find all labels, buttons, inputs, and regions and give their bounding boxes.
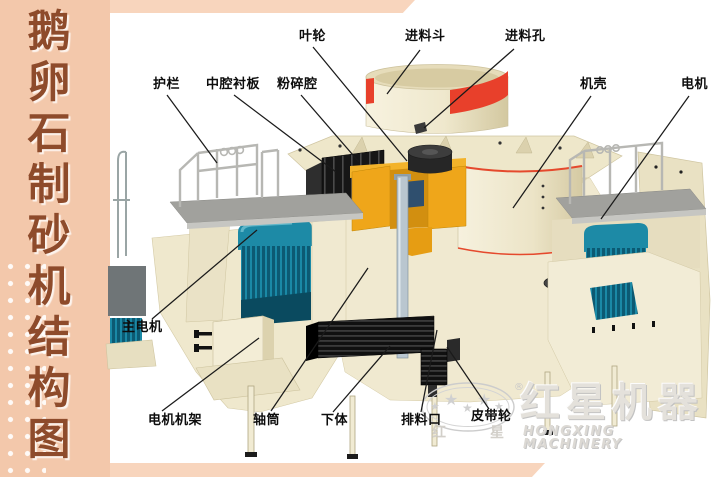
label-lower-body: 下体 (321, 414, 348, 427)
label-middle-chamber-liner: 中腔衬板 (206, 78, 260, 91)
label-guard-rail: 护栏 (153, 78, 180, 91)
star-icon: ★ (430, 400, 440, 413)
watermark-brand-cn: 红星机器 (520, 383, 704, 423)
label-motor: 电机 (681, 78, 708, 91)
label-impeller: 叶轮 (299, 30, 326, 43)
star-icon: ★ (444, 390, 458, 409)
label-discharge-port: 排料口 (401, 414, 442, 427)
label-main-motor: 主电机 (122, 321, 163, 334)
watermark-seal-left: 红 (432, 426, 446, 440)
label-motor-frame: 电机机架 (148, 414, 202, 427)
label-belt-pulley: 皮带轮 (471, 410, 512, 423)
watermark-brand-en: HONGXING MACHINERY (523, 425, 720, 451)
screenshot-root: 鹅卵石制砂机结构图 (0, 0, 720, 477)
label-shaft-tube: 轴筒 (253, 414, 280, 427)
label-crushing-chamber: 粉碎腔 (277, 78, 318, 91)
star-icon: ★ (477, 390, 491, 409)
label-feed-hopper: 进料斗 (405, 30, 446, 43)
watermark-seal-right: 星 (490, 426, 504, 440)
label-feed-hole: 进料孔 (505, 30, 546, 43)
label-machine-casing: 机壳 (580, 78, 607, 91)
